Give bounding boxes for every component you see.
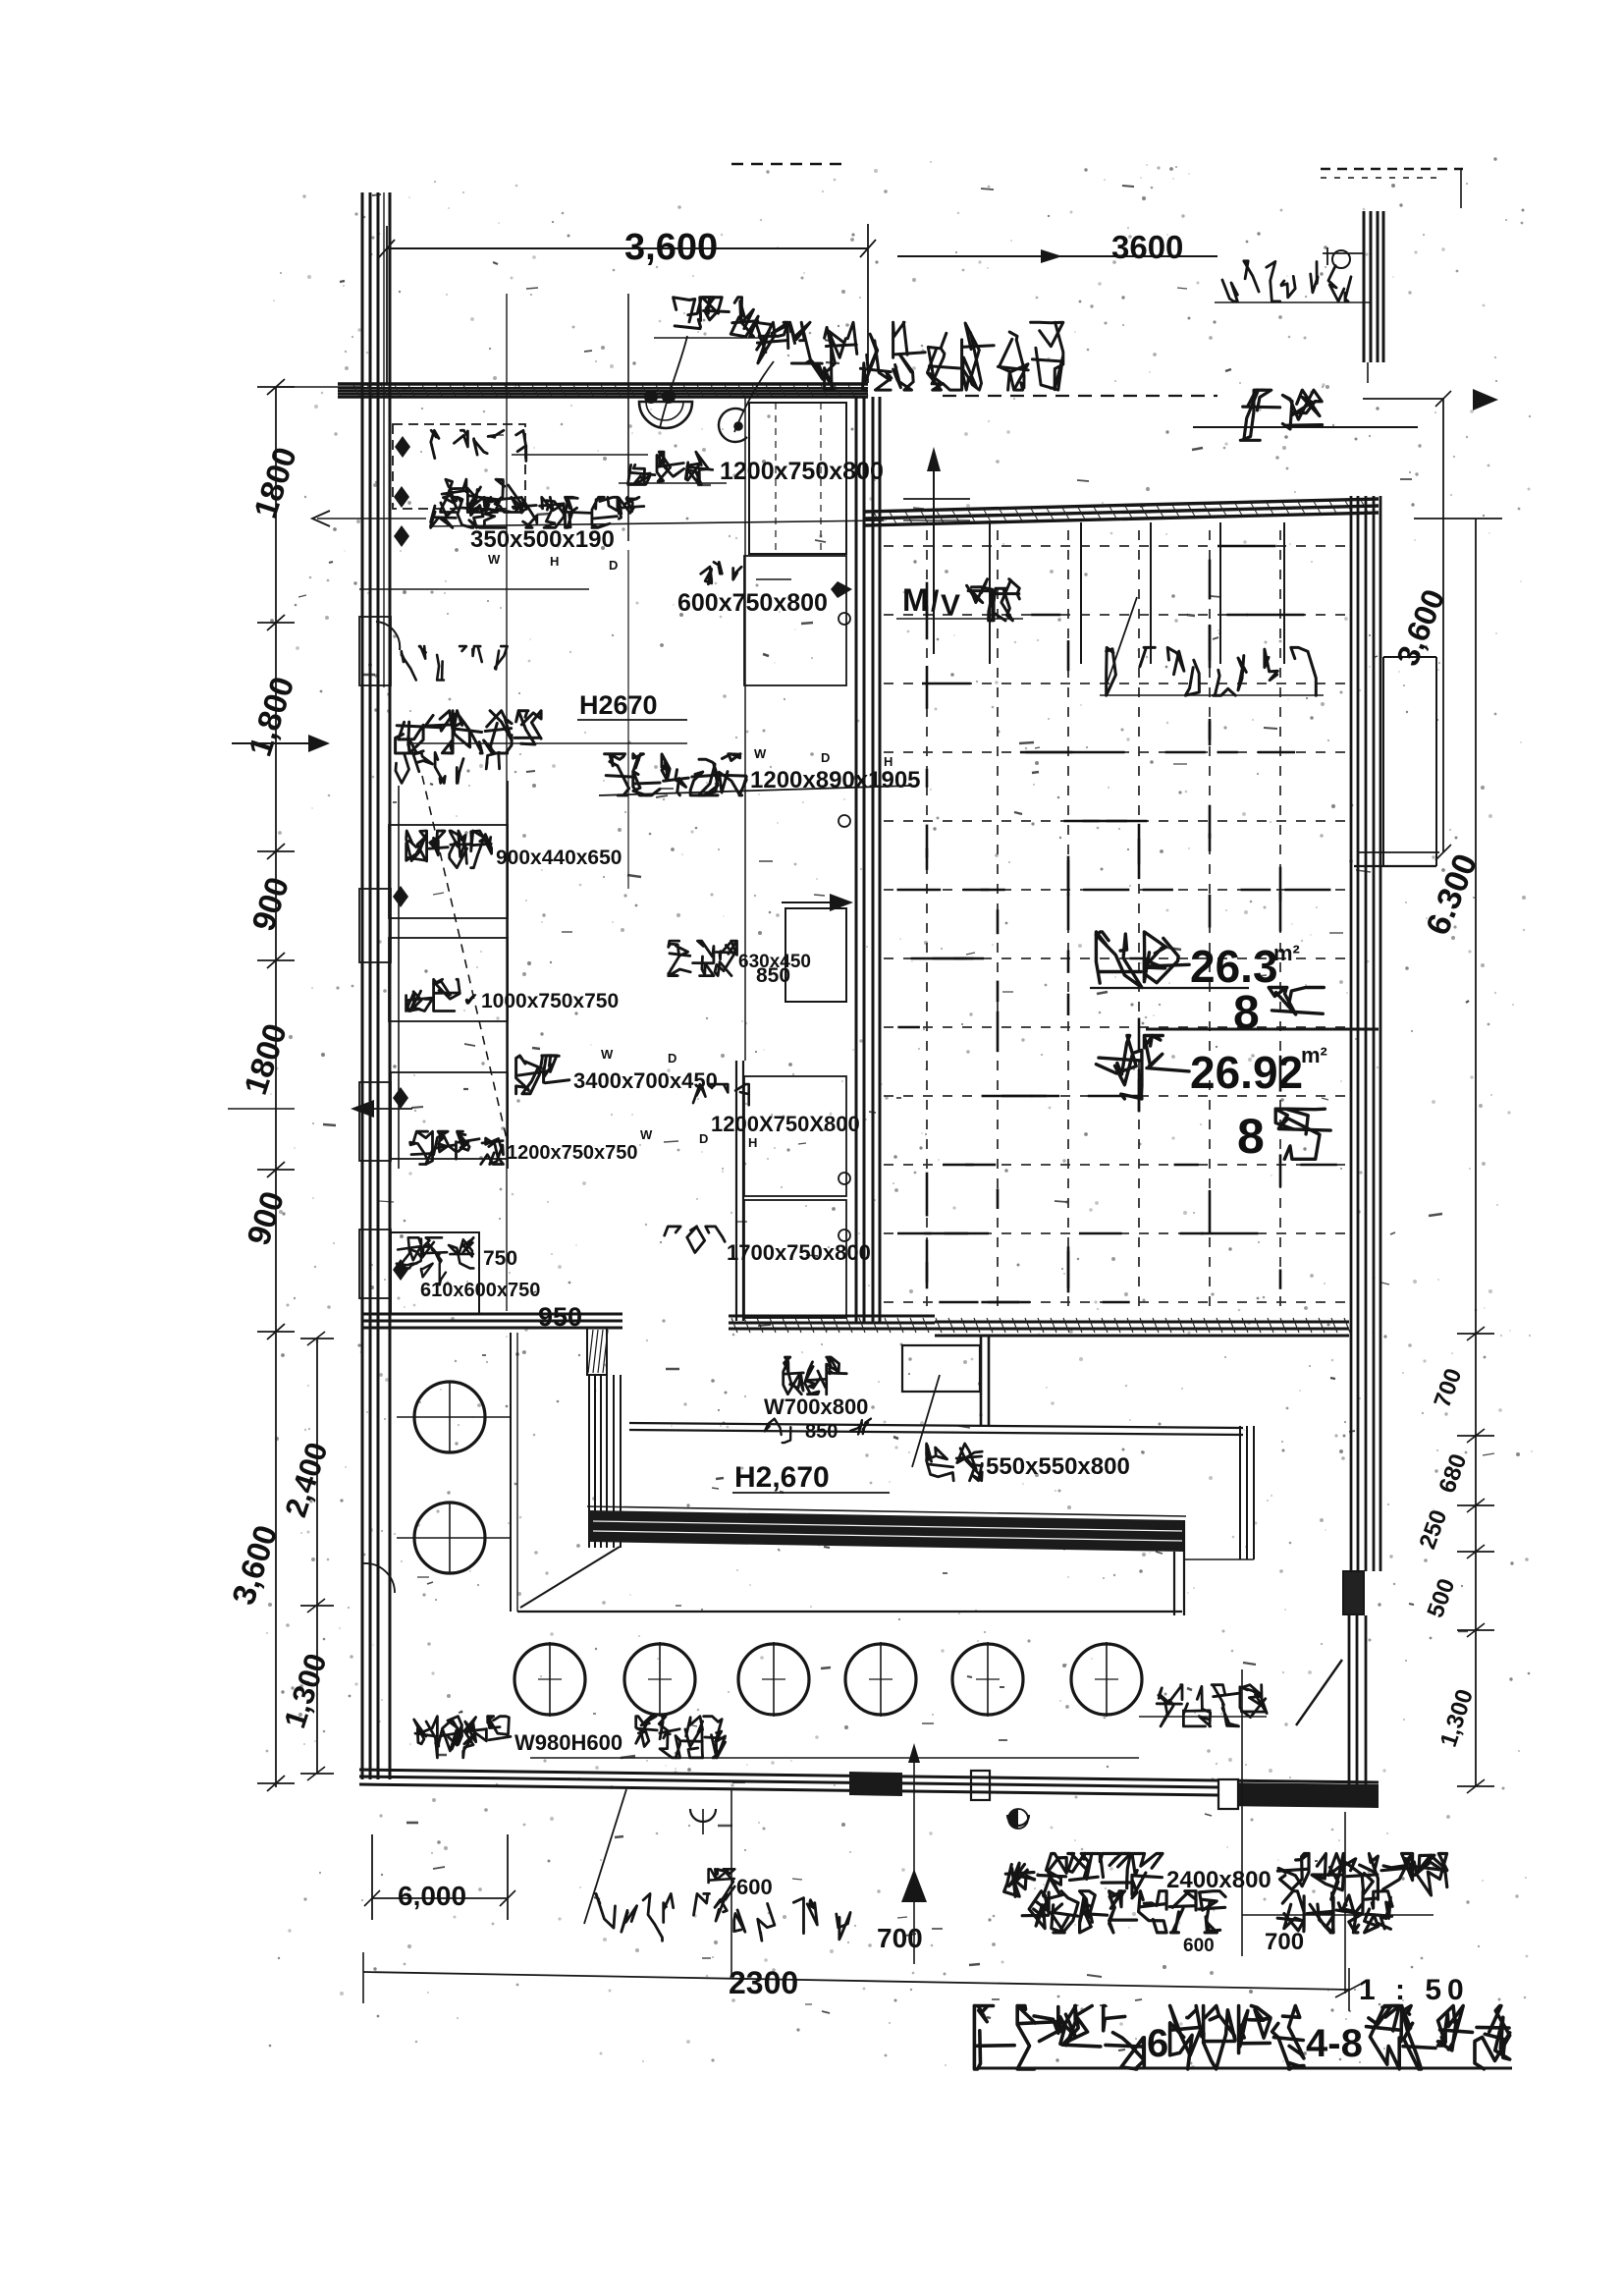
svg-text:D: D (609, 558, 618, 573)
svg-text:4-8: 4-8 (1306, 2022, 1363, 2065)
svg-text:1 : 50: 1 : 50 (1359, 1974, 1470, 2006)
svg-text:✔: ✔ (463, 990, 478, 1010)
svg-text:2400x800: 2400x800 (1166, 1867, 1271, 1893)
svg-text:W: W (754, 746, 767, 761)
svg-text:850: 850 (756, 964, 790, 987)
svg-text:700: 700 (1265, 1929, 1304, 1955)
svg-text:850: 850 (805, 1421, 838, 1443)
svg-text:1700x750x800: 1700x750x800 (727, 1240, 871, 1265)
svg-text:H2670: H2670 (579, 690, 658, 720)
svg-text:6: 6 (1147, 2022, 1168, 2065)
svg-text:1200x750x800: 1200x750x800 (720, 458, 884, 485)
svg-text:6,000: 6,000 (398, 1881, 466, 1911)
svg-text:600: 600 (1183, 1936, 1215, 1956)
svg-text:1200x750x750: 1200x750x750 (507, 1142, 637, 1164)
svg-text:3600: 3600 (1111, 229, 1183, 265)
svg-text:8: 8 (1233, 987, 1260, 1039)
svg-text:W: W (640, 1127, 653, 1142)
svg-text:H: H (550, 554, 559, 569)
svg-text:H2,670: H2,670 (734, 1461, 830, 1494)
svg-text:W980H600: W980H600 (514, 1730, 622, 1755)
svg-text:550x550x800: 550x550x800 (986, 1453, 1130, 1480)
svg-text:H: H (748, 1135, 757, 1150)
svg-text:D: D (668, 1051, 676, 1066)
svg-text:8: 8 (1237, 1109, 1265, 1164)
svg-text:D: D (699, 1131, 708, 1146)
svg-text:26.92: 26.92 (1190, 1047, 1303, 1098)
svg-text:M: M (902, 582, 929, 618)
svg-text:W700x800: W700x800 (764, 1394, 868, 1419)
svg-text:610x600x750: 610x600x750 (420, 1280, 540, 1301)
svg-text:950: 950 (538, 1302, 582, 1332)
svg-text:2300: 2300 (729, 1965, 798, 2000)
svg-text:600x750x800: 600x750x800 (677, 589, 828, 617)
svg-text:m²: m² (1273, 941, 1300, 965)
svg-text:1200X750X800: 1200X750X800 (711, 1112, 860, 1136)
svg-text:3,600: 3,600 (624, 227, 718, 268)
svg-text:350x500x190: 350x500x190 (470, 526, 615, 553)
svg-text:600: 600 (736, 1875, 773, 1899)
svg-text:750: 750 (483, 1247, 517, 1270)
svg-text:/: / (931, 585, 940, 618)
svg-text:W: W (488, 552, 501, 567)
svg-text:1000x750x750: 1000x750x750 (481, 990, 619, 1012)
svg-text:m²: m² (1301, 1043, 1327, 1067)
svg-text:D: D (821, 750, 830, 765)
svg-text:26.3: 26.3 (1190, 941, 1278, 992)
svg-text:3400x700x450: 3400x700x450 (573, 1068, 718, 1093)
svg-text:W: W (601, 1047, 614, 1062)
svg-text:H: H (884, 754, 893, 769)
svg-text:V: V (941, 589, 960, 622)
svg-text:900x440x650: 900x440x650 (496, 847, 622, 869)
svg-text:700: 700 (877, 1923, 923, 1953)
